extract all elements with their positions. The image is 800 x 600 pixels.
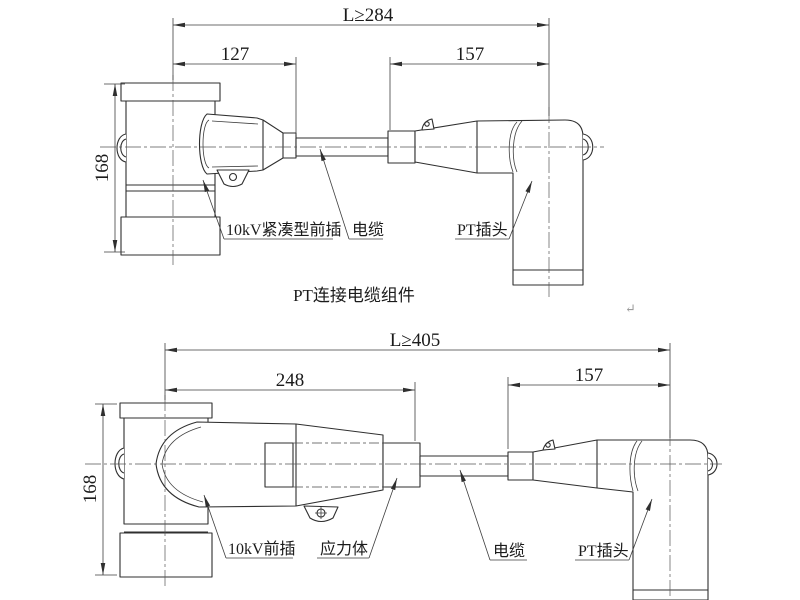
bottom-left-nipple <box>115 448 124 479</box>
bottom-pt-top-tab <box>543 440 555 450</box>
bottom-front-dimension-value: 248 <box>276 370 305 391</box>
bottom-front-plug-outline <box>156 422 383 507</box>
top-left-cylinder-cap <box>121 83 220 101</box>
bottom-pt-plug-label: PT插头 <box>578 542 629 560</box>
top-overall-dimension-value: L≥284 <box>343 5 394 26</box>
top-pt-plug-outline <box>415 120 583 285</box>
bottom-front-plug-label: 10kV前插 <box>228 540 296 558</box>
top-plug-dimension-value: 157 <box>456 44 485 65</box>
bottom-cable-label: 电缆 <box>493 542 525 560</box>
drawing-sheet: L≥284 127 157 168 10kV紧凑型前插 电缆 PT插头 PT连接… <box>0 0 800 600</box>
bottom-left-cylinder-base <box>120 533 212 577</box>
bottom-stress-cone-label: 应力体 <box>320 539 368 558</box>
stray-return-mark: ↵ <box>625 301 636 316</box>
bottom-stress-cone-connector <box>383 443 420 487</box>
top-pt-top-tab <box>422 119 434 130</box>
bottom-left-cylinder-cap <box>120 403 212 418</box>
top-cable-label: 电缆 <box>352 221 384 239</box>
top-pt-plug-label: PT插头 <box>457 221 508 239</box>
technical-drawing-canvas: L≥284 127 157 168 10kV紧凑型前插 电缆 PT插头 PT连接… <box>0 0 800 600</box>
bottom-pt-connector-block <box>508 452 533 480</box>
bottom-view-assembly: L≥405 248 157 168 10kV前插 应力体 电缆 PT插头 <box>80 330 722 600</box>
top-plug-mounting-tab <box>217 170 249 187</box>
bottom-cable <box>420 456 508 476</box>
top-front-plug-label: 10kV紧凑型前插 <box>226 221 342 239</box>
top-left-cylinder-base <box>121 217 220 255</box>
top-height-dimension-value: 168 <box>92 154 113 183</box>
top-front-dimension-value: 127 <box>221 44 250 65</box>
bottom-overall-dimension-value: L≥405 <box>390 330 441 351</box>
top-view-assembly: L≥284 127 157 168 10kV紧凑型前插 电缆 PT插头 PT连接… <box>92 5 604 305</box>
bottom-plug-dimension-value: 157 <box>575 365 604 386</box>
top-view-caption: PT连接电缆组件 <box>293 286 415 305</box>
bottom-height-dimension-value: 168 <box>80 475 101 504</box>
leader-line <box>460 470 490 560</box>
top-left-nipple <box>117 134 126 162</box>
